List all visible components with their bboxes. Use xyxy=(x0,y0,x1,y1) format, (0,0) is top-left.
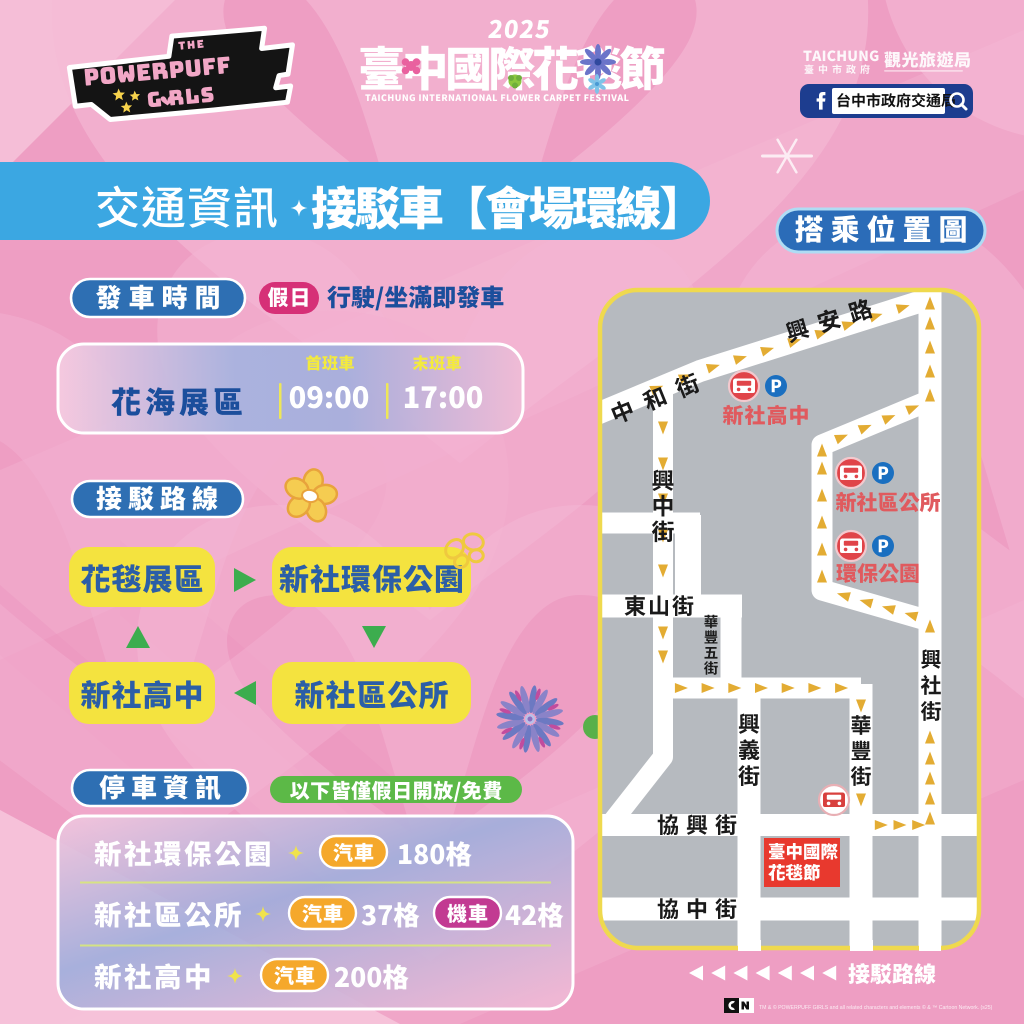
svg-text:TM & © POWERPUFF GIRLS and all: TM & © POWERPUFF GIRLS and all related c… xyxy=(759,1004,993,1011)
